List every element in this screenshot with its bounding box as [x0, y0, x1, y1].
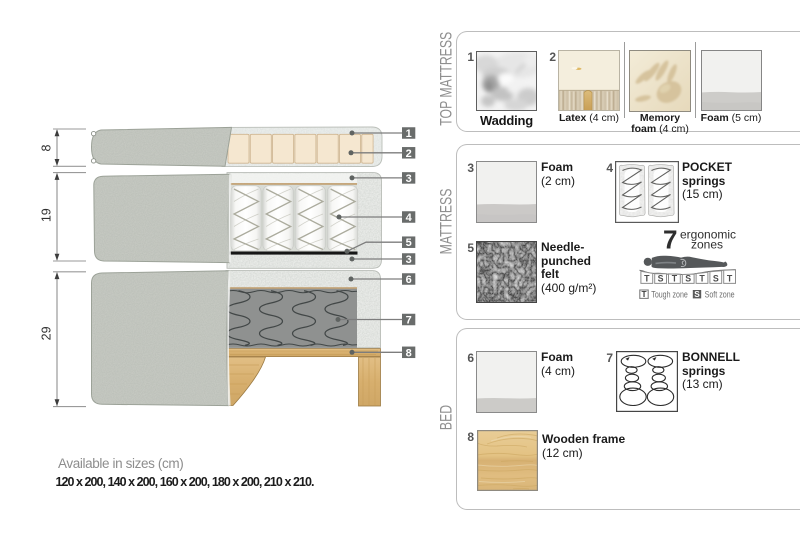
svg-text:S: S: [685, 273, 691, 283]
svg-text:S: S: [713, 273, 719, 283]
svg-text:Soft zone: Soft zone: [705, 290, 735, 300]
svg-text:T: T: [699, 273, 705, 283]
svg-text:19: 19: [39, 208, 53, 222]
svg-text:4: 4: [406, 212, 413, 224]
svg-text:Tough zone: Tough zone: [651, 290, 688, 300]
svg-text:zones: zones: [691, 238, 723, 252]
svg-text:6: 6: [406, 274, 412, 286]
svg-text:T: T: [672, 273, 678, 283]
svg-text:8: 8: [39, 144, 53, 151]
svg-text:S: S: [658, 273, 664, 283]
svg-text:3: 3: [406, 254, 412, 266]
svg-text:1: 1: [406, 128, 412, 140]
svg-text:8: 8: [406, 347, 412, 359]
svg-text:T: T: [641, 289, 646, 299]
svg-text:3: 3: [406, 173, 412, 185]
svg-text:S: S: [694, 289, 700, 299]
svg-text:T: T: [727, 273, 733, 283]
svg-text:7: 7: [406, 314, 412, 326]
svg-text:2: 2: [406, 148, 412, 160]
svg-text:T: T: [644, 273, 650, 283]
svg-text:29: 29: [39, 326, 53, 340]
svg-text:5: 5: [406, 237, 412, 249]
svg-text:7: 7: [663, 225, 677, 255]
